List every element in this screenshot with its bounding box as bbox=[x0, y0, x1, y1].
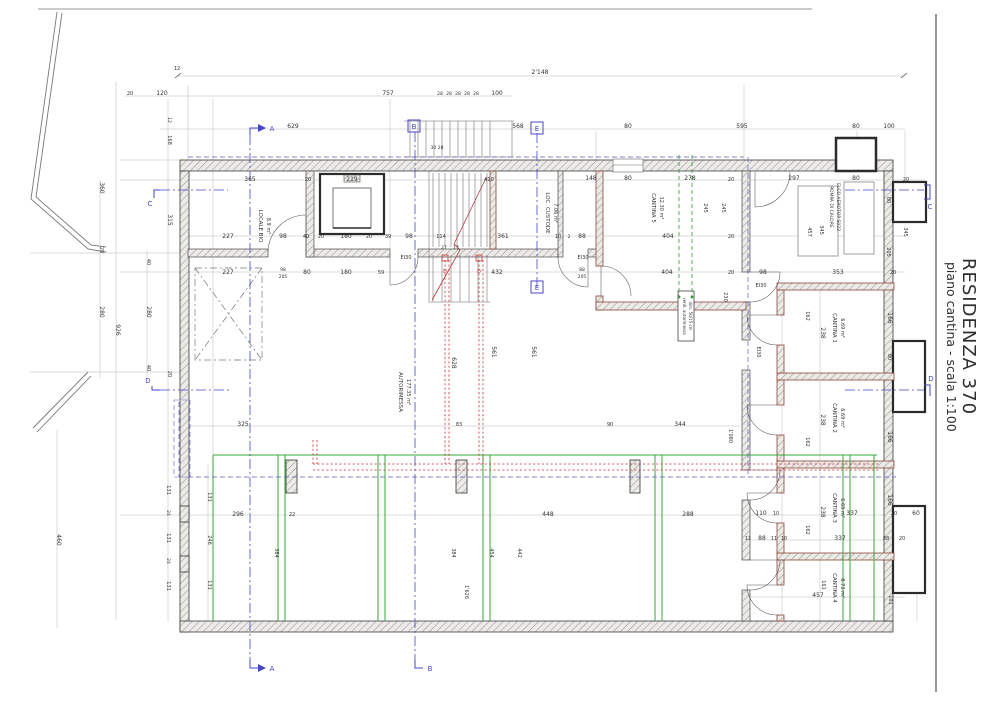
annotation: 166 bbox=[886, 494, 893, 506]
annotation: 162 bbox=[804, 525, 810, 535]
annotation: 17 bbox=[453, 245, 459, 251]
annotation: 1'626 bbox=[463, 585, 469, 599]
annotation: 457 bbox=[812, 592, 824, 599]
elevator bbox=[320, 174, 384, 234]
annotation: 561 bbox=[530, 346, 537, 358]
drawing-subtitle: piano cantina - scala 1:100 bbox=[944, 262, 959, 432]
annotation: 28 bbox=[455, 91, 461, 97]
annotation: CANTINA 3 bbox=[831, 493, 837, 523]
annotation: 280 bbox=[145, 306, 152, 318]
annotation: 227 bbox=[222, 233, 234, 240]
annotation: 280 bbox=[98, 306, 105, 318]
annotation: 148 bbox=[585, 175, 597, 182]
annotation: 20 bbox=[98, 247, 104, 253]
annotation: 353 bbox=[832, 269, 844, 276]
annotation: 28 bbox=[437, 91, 443, 97]
annotation: 12 bbox=[174, 66, 180, 72]
annotation: 30 28 bbox=[431, 145, 444, 151]
annotation: 20 bbox=[305, 177, 311, 183]
annotation: 20 bbox=[728, 234, 734, 240]
annotation: 404 bbox=[661, 269, 673, 276]
annotation: 344 bbox=[674, 421, 686, 428]
annotation: 404 bbox=[662, 233, 674, 240]
annotation: LOC. CUSTODE bbox=[544, 192, 550, 234]
annotation: 180 bbox=[340, 269, 352, 276]
annotation: POMPA DI CALORE bbox=[828, 186, 834, 228]
annotation: 100 bbox=[491, 90, 503, 97]
annotation: 27 bbox=[441, 245, 447, 251]
annotation: 20 bbox=[903, 177, 909, 183]
annotation: A bbox=[270, 665, 275, 673]
annotation: 448 bbox=[542, 511, 554, 518]
annotation: 88 bbox=[883, 536, 889, 542]
annotation: 20 bbox=[891, 511, 897, 517]
annotation: 88 bbox=[758, 535, 766, 542]
annotation: 100 bbox=[883, 123, 895, 130]
sheet-frame bbox=[38, 9, 936, 692]
annotation: 40 bbox=[303, 234, 309, 240]
annotation: CANTINA 2 bbox=[831, 403, 837, 433]
annotation: 296 bbox=[232, 511, 244, 518]
annotation: 345 bbox=[902, 227, 908, 237]
annotation: 219 bbox=[346, 176, 358, 183]
annotation: 131 bbox=[206, 580, 212, 590]
annotation: E bbox=[535, 284, 539, 292]
annotation: 22 bbox=[289, 512, 295, 518]
annotation: EI30 bbox=[756, 283, 767, 289]
annotation: 325 bbox=[237, 421, 249, 428]
exterior-walls bbox=[180, 160, 893, 632]
annotation: 337 bbox=[846, 510, 858, 517]
annotation: 80 bbox=[624, 175, 632, 182]
annotation: 8.73 m² bbox=[839, 578, 845, 598]
annotation: 20 bbox=[366, 234, 372, 240]
annotation: 1'080 bbox=[727, 429, 733, 443]
annotation: D bbox=[477, 269, 481, 275]
annotation: 12.30 m² bbox=[658, 197, 664, 220]
annotation: 20 bbox=[728, 270, 734, 276]
annotation: B bbox=[428, 665, 433, 673]
terrain-boundary bbox=[31, 12, 106, 432]
annotation: 40 bbox=[145, 365, 151, 371]
annotation: 166 bbox=[886, 312, 893, 324]
annotation: 6.69 m² bbox=[839, 318, 845, 338]
annotation: 10 bbox=[773, 511, 779, 517]
annotation: 80 bbox=[886, 354, 892, 360]
annotation: 162 bbox=[804, 311, 810, 321]
annotation: D bbox=[145, 377, 150, 385]
annotation: 80 bbox=[303, 269, 311, 276]
annotation: AUTORIMESSA bbox=[397, 372, 403, 412]
annotation: 384 bbox=[450, 548, 456, 558]
dimension-lines bbox=[30, 73, 925, 628]
annotation: 205 bbox=[279, 274, 288, 280]
annotation: 83 bbox=[456, 422, 462, 428]
annotation: 114 bbox=[436, 234, 446, 240]
annotation: ELCO AEROTOP S022 bbox=[835, 183, 841, 231]
annotation: 278 bbox=[684, 175, 696, 182]
annotation: 926 bbox=[114, 324, 121, 336]
annotation: 110 bbox=[755, 510, 767, 517]
annotation: 337 bbox=[834, 535, 846, 542]
annotation: 28 bbox=[446, 91, 452, 97]
annotation: 24 bbox=[165, 510, 171, 516]
annotation: 98 bbox=[759, 269, 767, 276]
annotation: B bbox=[412, 123, 417, 131]
annotation: 131 bbox=[165, 533, 171, 543]
guide-lines bbox=[174, 157, 896, 477]
title-block: RESIDENZA 370 piano cantina - scala 1:10… bbox=[944, 258, 979, 432]
annotation: 80 bbox=[852, 123, 860, 130]
annotation: 161 bbox=[820, 580, 826, 590]
annotation: 131 bbox=[206, 492, 212, 502]
annotation: 131 bbox=[165, 581, 171, 591]
annotation: EI30 bbox=[578, 255, 589, 261]
annotation: 20 bbox=[318, 234, 324, 240]
annotation: 460 bbox=[55, 534, 62, 546]
annotation: 205 bbox=[578, 274, 587, 280]
annotation: 162 bbox=[804, 437, 810, 447]
annotation: 345 bbox=[818, 225, 824, 235]
annotation: 315 bbox=[166, 214, 173, 226]
annotation: 39 bbox=[385, 234, 391, 240]
annotation: CANTINA 4 bbox=[831, 573, 837, 603]
annotation: 20 bbox=[890, 270, 896, 276]
annotation: 246 bbox=[206, 535, 212, 545]
annotation: LOCALE BIO bbox=[257, 210, 263, 243]
annotation: 384 bbox=[273, 548, 279, 558]
annotation: 432 bbox=[491, 269, 503, 276]
annotation: 98 bbox=[279, 233, 287, 240]
annotation: 457 bbox=[806, 227, 812, 237]
project-title: RESIDENZA 370 bbox=[958, 258, 979, 415]
annotation: 227 bbox=[222, 269, 234, 276]
annotation: 238 bbox=[819, 414, 826, 426]
annotation: 166 bbox=[886, 431, 893, 443]
annotation: 24 bbox=[165, 558, 171, 564]
annotation: 11 bbox=[771, 536, 777, 542]
annotation: 40 bbox=[145, 259, 151, 265]
annotation: 60 bbox=[912, 510, 920, 517]
annotation: venti. autorimessa bbox=[682, 297, 687, 335]
annotation: 757 bbox=[382, 90, 394, 97]
annotation: EI30 bbox=[755, 347, 761, 358]
annotation: 98 bbox=[405, 233, 413, 240]
annotation: 205 bbox=[885, 247, 891, 257]
annotation: 238 bbox=[819, 327, 826, 339]
annotation: D bbox=[928, 375, 933, 383]
annotation: 6.69 m² bbox=[839, 498, 845, 518]
annotation: 88 bbox=[578, 233, 586, 240]
annotation: 410 bbox=[484, 177, 494, 183]
annotation: 595 bbox=[736, 123, 748, 130]
annotation: 120 bbox=[156, 90, 168, 97]
annotation: 245 bbox=[720, 203, 726, 213]
annotation: 98 bbox=[280, 267, 286, 273]
annotation: 297 bbox=[788, 175, 800, 182]
annotation: 8.9 m² bbox=[265, 218, 271, 234]
annotation: EI30 bbox=[401, 255, 412, 261]
annotation: 230 bbox=[722, 292, 728, 302]
annotation: 454 bbox=[488, 548, 494, 558]
annotation: 561 bbox=[490, 346, 497, 358]
ramp-cross bbox=[195, 268, 262, 360]
annotation: 568 bbox=[512, 123, 524, 130]
annotation: 80 bbox=[624, 123, 632, 130]
annotation: 88 bbox=[579, 267, 585, 273]
annotation: 12 bbox=[166, 117, 172, 123]
annotation: 288 bbox=[682, 511, 694, 518]
annotation: 101 bbox=[887, 595, 893, 605]
annotation: 20 bbox=[127, 91, 133, 97]
annotation: 238 bbox=[819, 506, 826, 518]
annotation: 80 bbox=[852, 175, 860, 182]
annotation: 360 bbox=[98, 182, 105, 194]
annotation: 442 bbox=[516, 548, 522, 558]
annotation: 11 bbox=[745, 536, 751, 542]
annotation: CANTINA 1 bbox=[831, 313, 837, 343]
annotation: CANTINA 5 bbox=[650, 193, 656, 223]
annotation: 20 bbox=[899, 536, 905, 542]
annotation: 180 bbox=[340, 233, 352, 240]
annotation: 628 bbox=[450, 357, 457, 369]
drawing-sheet: 2'14812201207572828282828100629568805958… bbox=[0, 0, 1000, 707]
annotation: 28 bbox=[473, 91, 479, 97]
annotation: 10 bbox=[781, 536, 787, 542]
annotation: 361 bbox=[497, 233, 509, 240]
annotation: 7.06 m² bbox=[552, 203, 558, 223]
annotation: E bbox=[535, 125, 539, 133]
annotation: 20 bbox=[728, 177, 734, 183]
annotation: D bbox=[443, 269, 447, 275]
window-opening bbox=[613, 159, 643, 172]
annotation: 59 bbox=[378, 270, 384, 276]
annotation: 2 bbox=[568, 234, 571, 240]
annotation: 365 bbox=[244, 176, 256, 183]
annotation: 90 bbox=[607, 422, 613, 428]
annotation: 20 bbox=[166, 371, 172, 377]
annotation: dim. 50/15 cm bbox=[688, 302, 693, 331]
annotation: 2'148 bbox=[532, 69, 549, 76]
floor-plan-drawing: 2'14812201207572828282828100629568805958… bbox=[0, 0, 1000, 707]
annotation: 6.69 m² bbox=[839, 408, 845, 428]
annotation: 28 bbox=[464, 91, 470, 97]
annotation: C bbox=[148, 200, 153, 208]
annotation: C bbox=[928, 203, 933, 211]
annotation: A bbox=[270, 125, 275, 133]
annotation: 168 bbox=[166, 135, 172, 145]
annotation: 177.35 m² bbox=[405, 379, 411, 405]
annotation: 10 bbox=[555, 234, 561, 240]
annotation: 131 bbox=[165, 485, 171, 495]
annotation: 245 bbox=[702, 203, 708, 213]
annotation: 629 bbox=[287, 123, 299, 130]
annotation: 80 bbox=[885, 197, 891, 203]
